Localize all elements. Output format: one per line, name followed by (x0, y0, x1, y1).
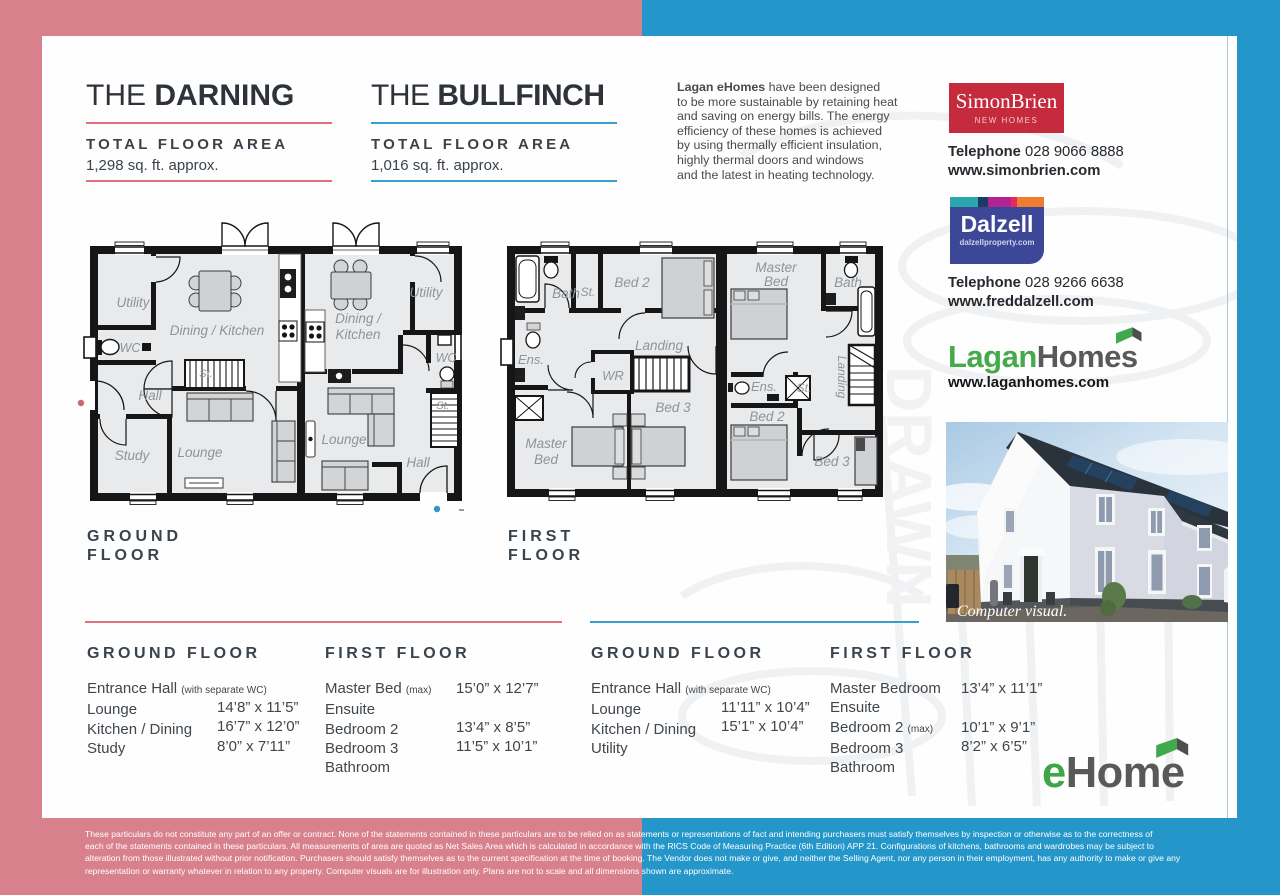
svg-text:Bed 2: Bed 2 (749, 409, 785, 424)
svg-text:Landing: Landing (835, 356, 849, 399)
svg-text:Master: Master (755, 260, 797, 275)
svg-text:Kitchen: Kitchen (335, 327, 380, 342)
svg-text:Bed: Bed (534, 452, 559, 467)
svg-text:St.: St. (797, 381, 812, 395)
svg-text:Ens.: Ens. (518, 352, 544, 367)
svg-text:Lounge: Lounge (321, 432, 366, 447)
svg-text:WR: WR (602, 368, 624, 383)
svg-text:Ens.: Ens. (751, 379, 777, 394)
svg-text:Computer visual.: Computer visual. (957, 603, 1067, 620)
svg-text:St.: St. (436, 400, 449, 412)
svg-text:Hall: Hall (406, 455, 430, 470)
svg-text:Bed 2: Bed 2 (614, 275, 650, 290)
svg-text:Hall: Hall (138, 388, 162, 403)
svg-text:Utility: Utility (410, 285, 444, 300)
svg-text:Utility: Utility (117, 295, 151, 310)
svg-text:St.: St. (199, 368, 212, 380)
svg-text:Bed 3: Bed 3 (814, 454, 850, 469)
svg-text:Bath: Bath (834, 275, 862, 290)
svg-text:Bed: Bed (764, 274, 789, 289)
svg-text:Master: Master (525, 436, 567, 451)
svg-text:Dining / Kitchen: Dining / Kitchen (170, 323, 265, 338)
svg-text:Bed 3: Bed 3 (655, 400, 691, 415)
svg-text:WC: WC (120, 341, 142, 355)
svg-text:WC: WC (436, 351, 458, 365)
svg-text:Lounge: Lounge (177, 445, 222, 460)
svg-text:Landing: Landing (635, 338, 684, 353)
svg-text:St.: St. (581, 285, 596, 299)
svg-text:Dining /: Dining / (335, 311, 382, 326)
svg-text:Bath: Bath (552, 286, 580, 301)
svg-text:Study: Study (115, 448, 151, 463)
